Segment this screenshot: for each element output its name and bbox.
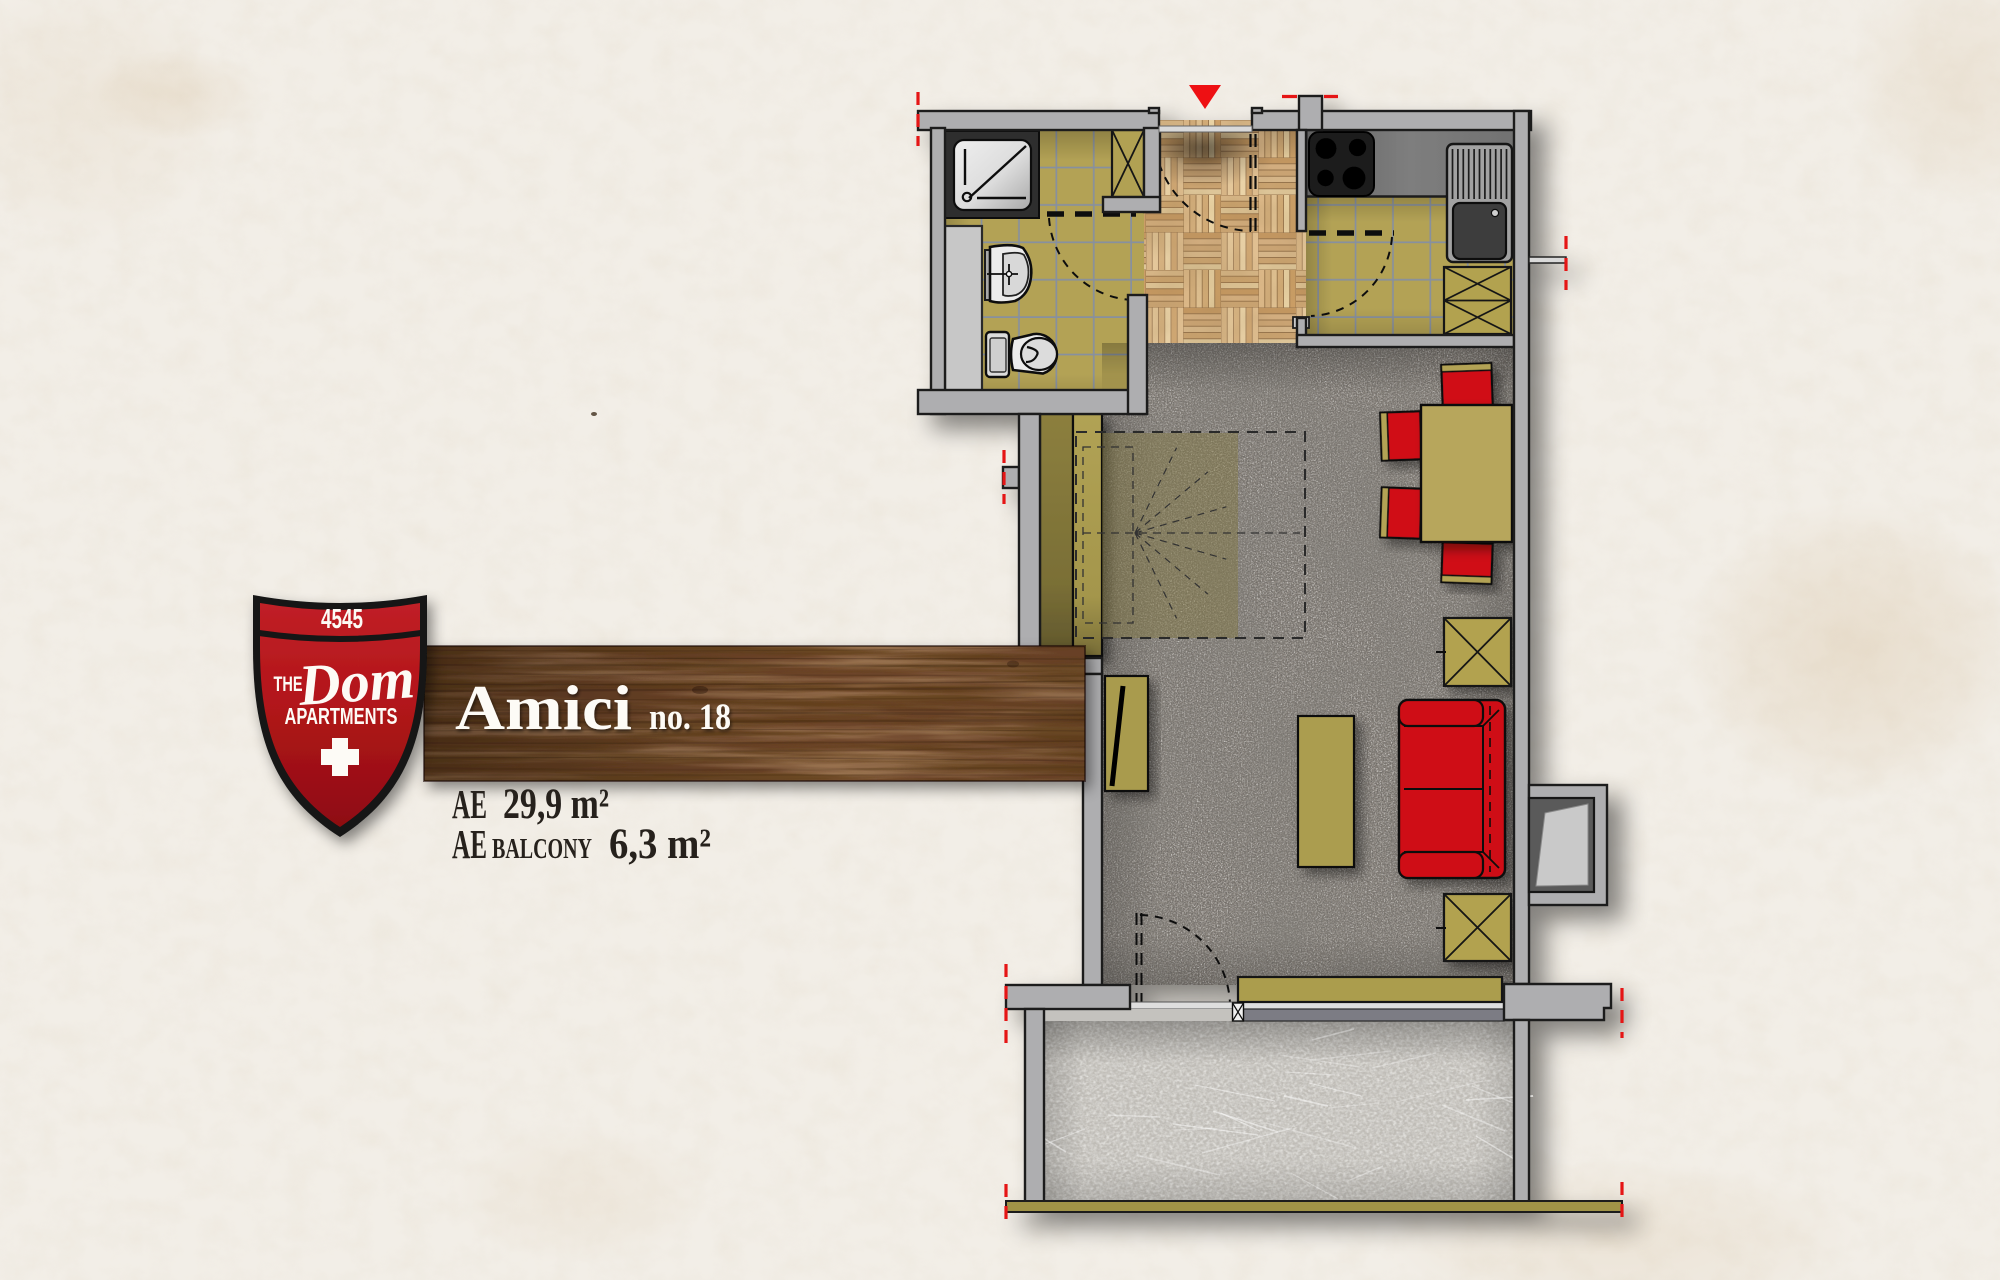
svg-text:no. 18: no. 18 <box>649 697 731 738</box>
svg-text:4545: 4545 <box>321 603 363 634</box>
svg-text:6,3 m²: 6,3 m² <box>609 821 711 868</box>
svg-text:Amici: Amici <box>455 673 632 743</box>
svg-text:29,9 m²: 29,9 m² <box>503 781 609 828</box>
svg-text:AE: AE <box>452 821 487 867</box>
svg-text:Dom: Dom <box>295 645 416 718</box>
svg-text:BALCONY: BALCONY <box>492 834 592 865</box>
